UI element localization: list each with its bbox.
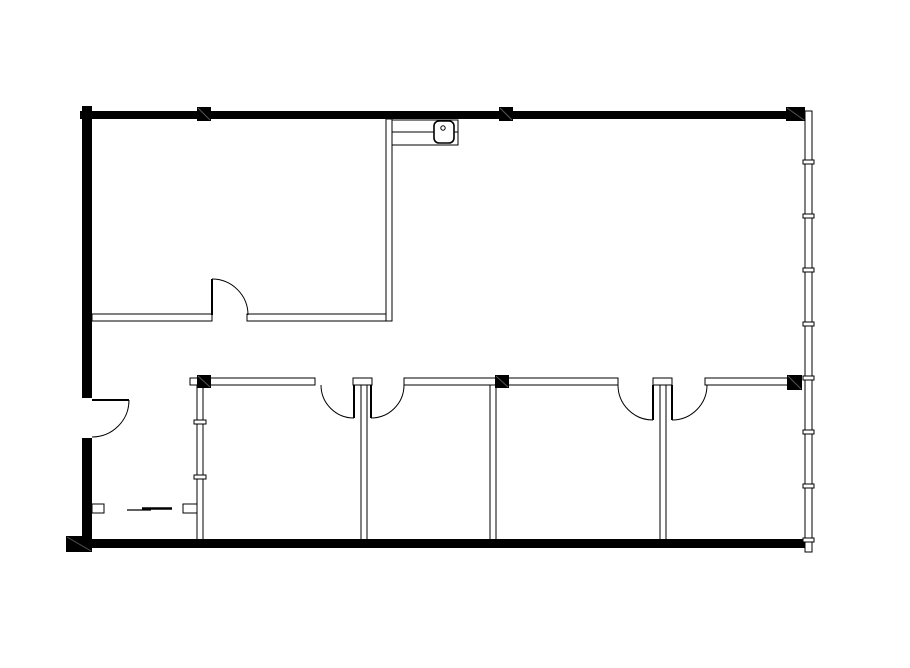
- closet-jamb-left: [92, 504, 104, 513]
- window-mullion-3: [803, 268, 814, 272]
- sink-drain: [441, 126, 445, 130]
- partition-1-joint-upper: [194, 420, 206, 424]
- window-mullion-2: [803, 214, 814, 218]
- window-mullion-7: [803, 484, 814, 488]
- fixtures: [392, 120, 458, 145]
- window-mullion-8: [803, 538, 814, 542]
- private-office-east-wall: [386, 119, 392, 321]
- window-mullion-1: [803, 160, 814, 164]
- paper-background: [0, 0, 910, 668]
- window-mullion-5: [803, 376, 814, 380]
- floor-plan-drawing: [0, 0, 910, 668]
- office-partition-1: [197, 385, 203, 540]
- closet-jamb-right: [183, 504, 197, 513]
- office-partition-4: [660, 385, 666, 540]
- sink: [434, 121, 454, 143]
- top-exterior-wall: [80, 111, 788, 119]
- partition-1-joint-lower: [194, 475, 206, 479]
- private-office-south-wall-left: [92, 314, 212, 321]
- left-exterior-wall-upper: [82, 106, 92, 398]
- corridor-wall-stub-2: [653, 378, 672, 385]
- private-office-south-wall-right: [247, 314, 390, 321]
- window-mullion-6: [803, 430, 814, 434]
- bottom-exterior-wall: [80, 539, 805, 548]
- office-partition-2: [361, 385, 367, 540]
- left-exterior-wall-lower: [82, 438, 92, 548]
- corridor-wall-stub-1: [353, 378, 372, 385]
- corridor-wall-segment-c: [705, 378, 789, 385]
- window-wall: [803, 111, 814, 552]
- corridor-wall-segment-b: [404, 378, 618, 385]
- office-partition-3: [490, 385, 496, 540]
- window-mullion-4: [803, 322, 814, 326]
- floor-plan-page: [0, 0, 910, 668]
